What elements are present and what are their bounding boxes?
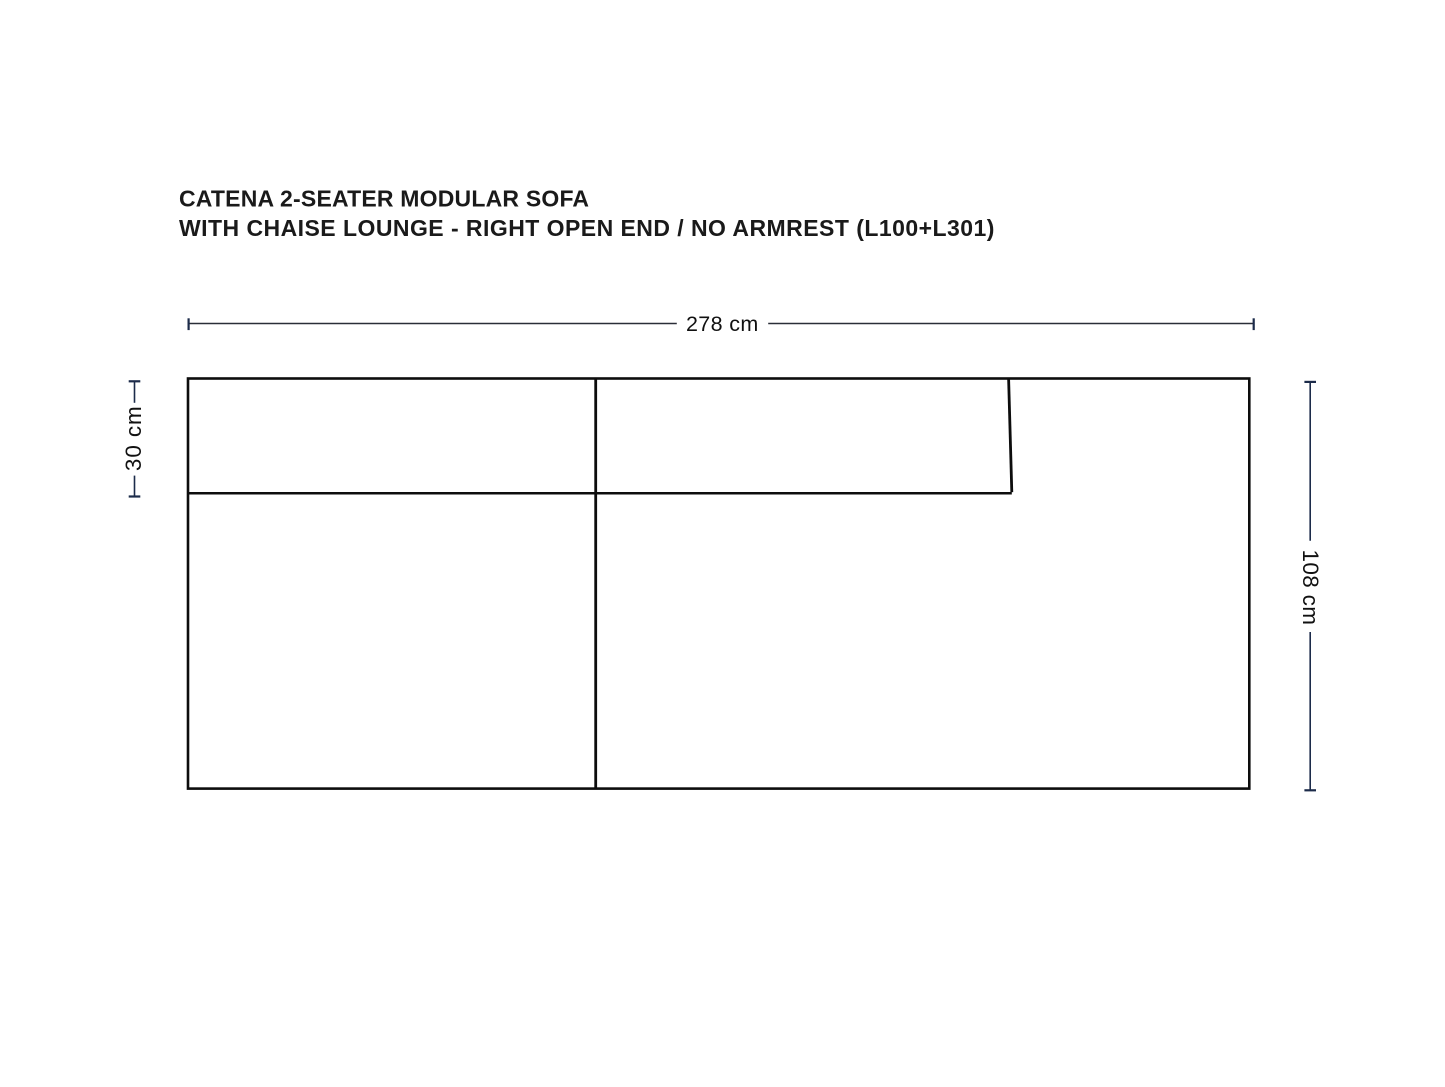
svg-text:108 cm: 108 cm xyxy=(1298,549,1323,625)
svg-text:30 cm: 30 cm xyxy=(121,405,146,471)
svg-text:WITH CHAISE LOUNGE - RIGHT OPE: WITH CHAISE LOUNGE - RIGHT OPEN END / NO… xyxy=(179,215,995,241)
svg-text:CATENA 2-SEATER MODULAR SOFA: CATENA 2-SEATER MODULAR SOFA xyxy=(179,186,589,212)
svg-text:278 cm: 278 cm xyxy=(686,312,759,336)
